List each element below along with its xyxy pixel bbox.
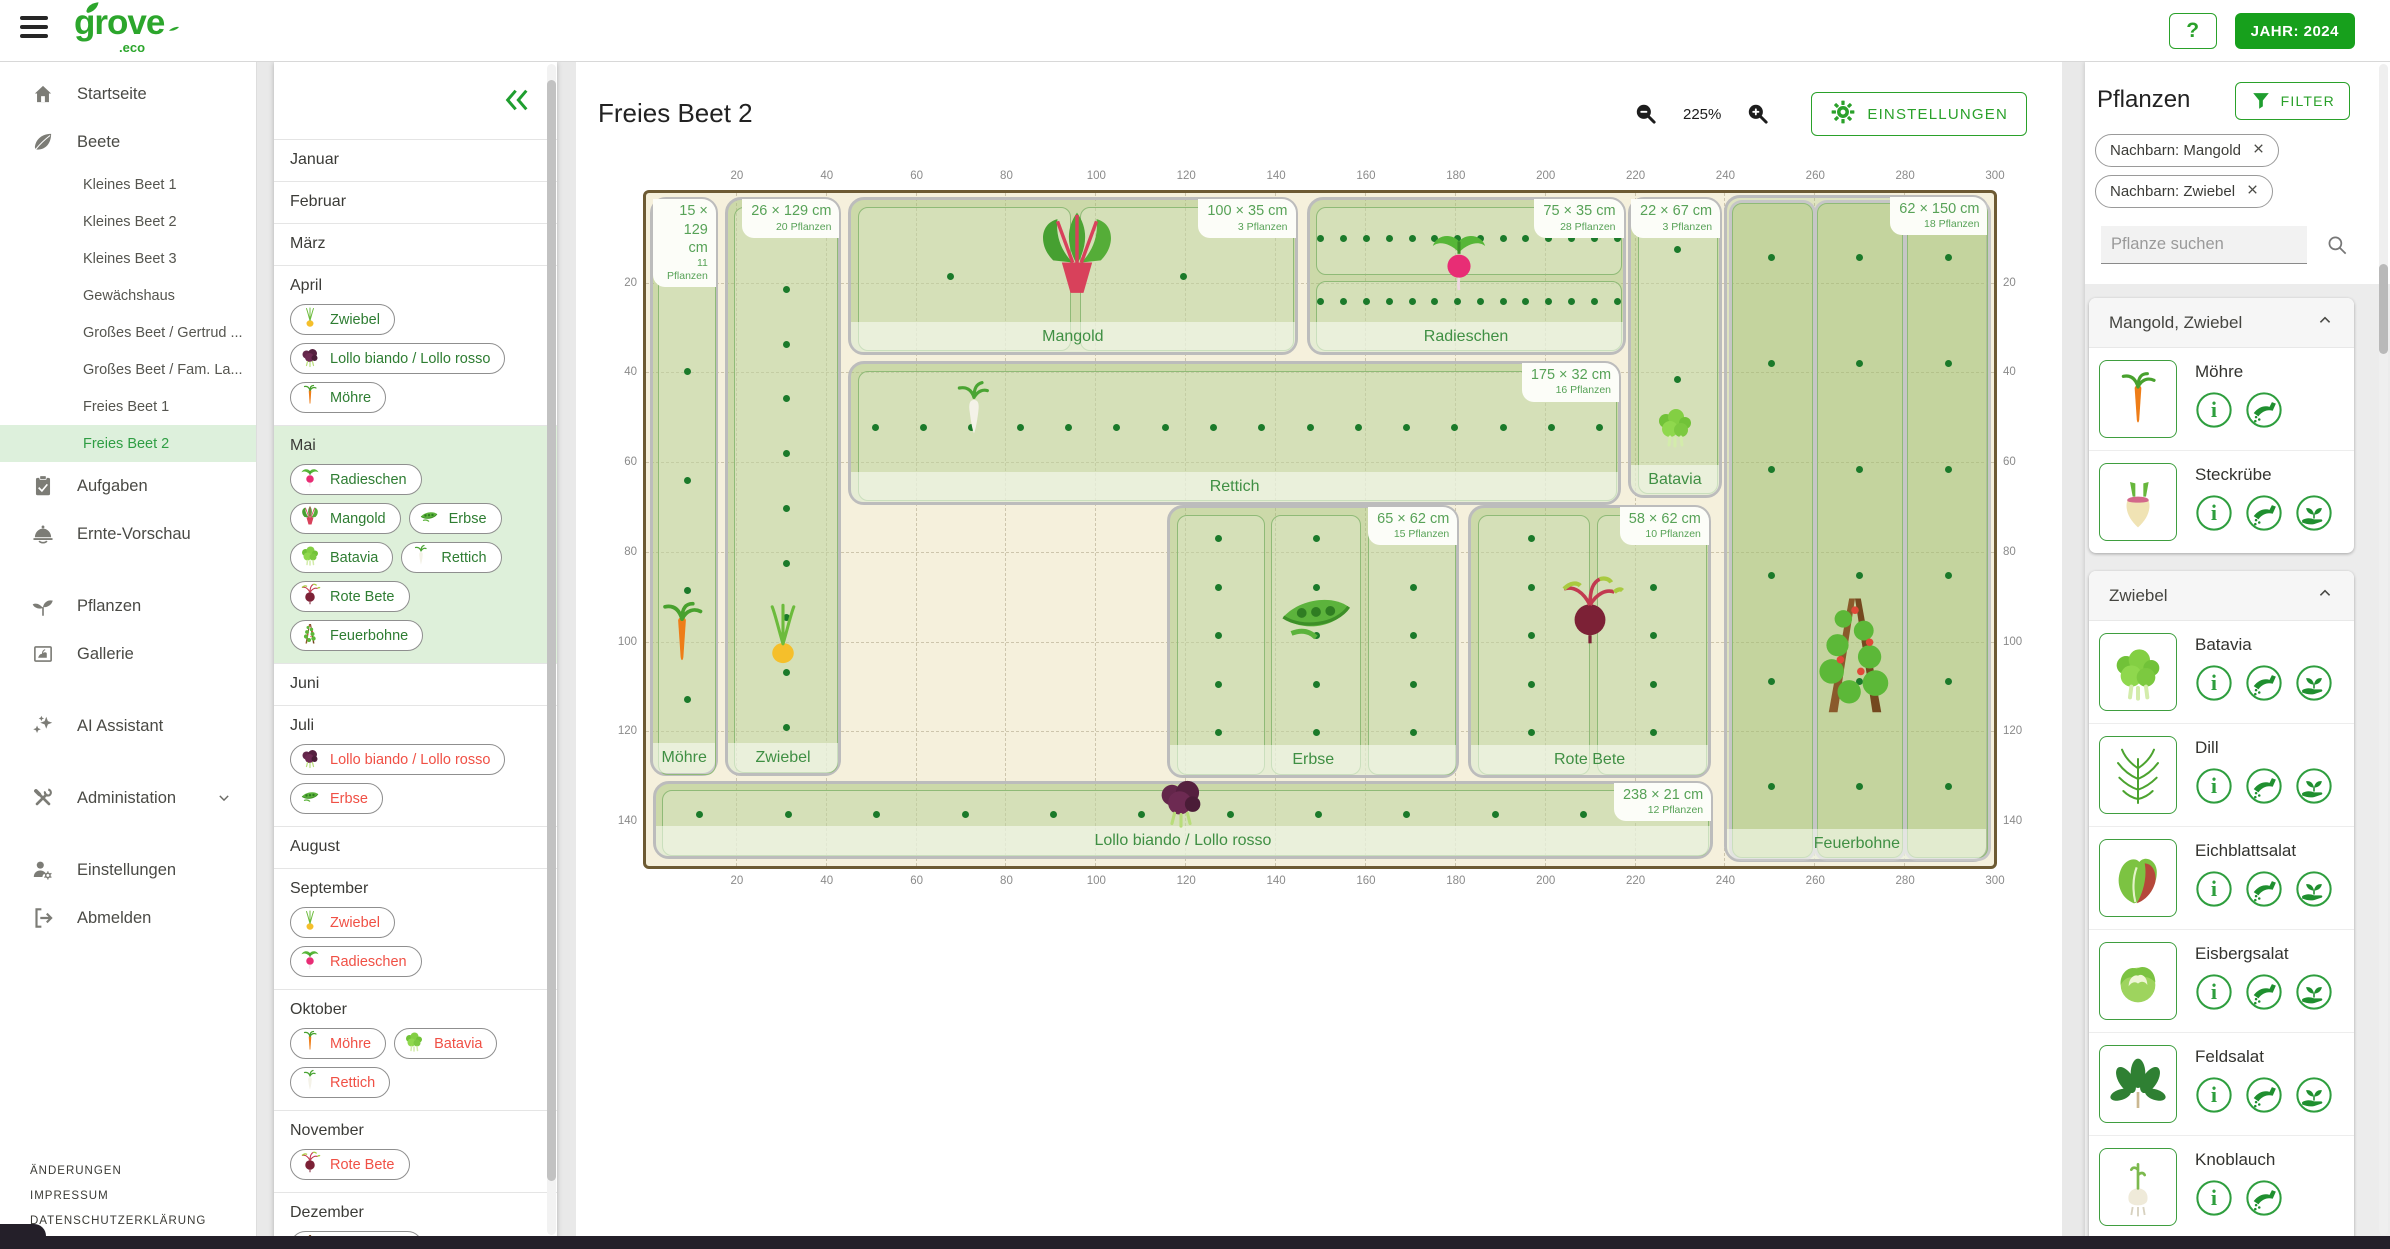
month-april[interactable]: AprilZwiebelLollo biando / Lollo rossoMö… [274, 266, 557, 426]
filter-button[interactable]: FILTER [2235, 82, 2350, 120]
feldsalat-image[interactable] [2099, 1045, 2177, 1123]
sidebar-item-ai-assistant[interactable]: AI Assistant [0, 702, 256, 750]
moehre-image[interactable] [2099, 360, 2177, 438]
rotebete-icon [298, 582, 322, 611]
close-icon[interactable] [2245, 182, 2260, 201]
chip-label: Mangold [330, 511, 386, 527]
svg-text:i: i [2211, 979, 2217, 1004]
zoom-out-icon[interactable] [1633, 101, 1659, 127]
plant-chip-zwiebel[interactable]: Zwiebel [290, 304, 395, 335]
plant-dot [1138, 811, 1145, 818]
sidebar-item-label: Administation [77, 789, 176, 808]
plant-dot [962, 811, 969, 818]
month-label: August [290, 838, 541, 856]
plant-dot [1403, 811, 1410, 818]
plant-group-zwiebel: ZwiebelBataviaiDilliEichblattsalatiEisbe… [2089, 571, 2354, 1249]
sidebar: StartseiteBeeteKleines Beet 1Kleines Bee… [0, 62, 257, 1249]
month-juni[interactable]: Juni [274, 664, 557, 706]
plant-dot [1650, 681, 1657, 688]
sidebar-item-label: Gallerie [77, 645, 134, 664]
area-size-badge: 100 × 35 cm3 Pflanzen [1198, 199, 1295, 237]
sidebar-item-gallerie[interactable]: Gallerie [0, 630, 256, 678]
svg-text:i: i [2211, 773, 2217, 798]
plant-dot [684, 368, 691, 375]
plant-dot [1596, 424, 1603, 431]
clipboard-icon [30, 473, 56, 499]
sidebar-item-label: Großes Beet / Fam. La... [83, 362, 243, 378]
svg-text:i: i [2211, 397, 2217, 422]
plant-chip-rote-bete[interactable]: Rote Bete [290, 581, 410, 612]
plant-dot [783, 286, 790, 293]
ruler-label: 100 [2003, 636, 2029, 648]
knoblauch-image[interactable] [2099, 1148, 2177, 1226]
bed-controls: 225% EINSTELLUNGEN [1633, 92, 2027, 136]
group-header[interactable]: Zwiebel [2089, 571, 2354, 621]
svg-text:i: i [2211, 670, 2217, 695]
area-name-label: Erbse [1170, 745, 1456, 775]
area-size-badge: 65 × 62 cm15 Pflanzen [1368, 507, 1457, 545]
month-chips: ZwiebelLollo biando / Lollo rossoMöhre [290, 304, 541, 413]
plant-dot [1065, 424, 1072, 431]
plant-group-mangold-zwiebel: Mangold, ZwiebelMöhreiSteckrübei [2089, 298, 2354, 553]
ruler-label: 120 [611, 725, 637, 737]
sidebar-item-label: Beete [77, 133, 120, 152]
chevron-up-icon [2314, 582, 2336, 609]
plant-chip-lollo-biando-lollo-rosso[interactable]: Lollo biando / Lollo rosso [290, 744, 505, 775]
planting-row [1907, 203, 1988, 858]
sidebar-item-label: Großes Beet / Gertrud ... [83, 325, 243, 341]
sow-button[interactable] [2245, 1179, 2283, 1217]
sidebar-item-kleines-beet-2[interactable]: Kleines Beet 2 [0, 203, 256, 240]
search-input[interactable] [2101, 226, 2307, 264]
area-name-label: Möhre [653, 743, 714, 773]
sidebar-item-freies-beet-2[interactable]: Freies Beet 2 [0, 425, 256, 462]
month-label: November [290, 1122, 541, 1140]
chip-label: Rettich [330, 1075, 375, 1091]
plant-dot [1500, 298, 1507, 305]
svg-text:i: i [2211, 876, 2217, 901]
ruler-label: 280 [1892, 875, 1918, 887]
area-name-label: Lollo biando / Lollo rosso [656, 826, 1710, 856]
sidebar-item-kleines-beet-3[interactable]: Kleines Beet 3 [0, 240, 256, 277]
sidebar-item-administation[interactable]: Administation [0, 774, 256, 822]
eichblattsalat-image[interactable] [2099, 839, 2177, 917]
plant-button[interactable] [2295, 1076, 2333, 1114]
plant-dot [1410, 584, 1417, 591]
month-november[interactable]: NovemberRote Bete [274, 1111, 557, 1193]
bed-area-batavia[interactable]: 22 × 67 cm3 PflanzenBatavia [1628, 197, 1722, 498]
plant-dot [684, 587, 691, 594]
area-size-badge: 22 × 67 cm3 Pflanzen [1631, 199, 1720, 237]
plant-dot [783, 724, 790, 731]
plant-dot [1355, 424, 1362, 431]
plant-dot [783, 450, 790, 457]
group-title: Zwiebel [2109, 586, 2168, 606]
gallery-icon [30, 641, 56, 667]
plant-actions: i [2195, 664, 2333, 702]
ruler-label: 240 [1712, 170, 1738, 182]
sidebar-footer: ÄNDERUNGEN IMPRESSUM DATENSCHUTZERKLÄRUN… [30, 1152, 206, 1227]
plant-dot [1768, 678, 1775, 685]
ruler-label: 40 [2003, 366, 2029, 378]
plant-dot [1945, 572, 1952, 579]
plant-dot [1386, 235, 1393, 242]
plant-chip-feuerbohne[interactable]: Feuerbohne [290, 620, 423, 651]
plant-dot [1210, 424, 1217, 431]
plant-dot [1945, 466, 1952, 473]
ruler-label: 220 [1623, 875, 1649, 887]
batavia-icon [402, 1029, 426, 1058]
sow-button[interactable] [2245, 664, 2283, 702]
sow-button[interactable] [2245, 973, 2283, 1011]
plant-name: Knoblauch [2195, 1150, 2283, 1170]
month-m-rz[interactable]: März [274, 224, 557, 266]
plant-actions: i [2195, 767, 2333, 805]
info-button[interactable]: i [2195, 494, 2233, 532]
chip-label: Lollo biando / Lollo rosso [330, 752, 490, 768]
bed-area-zwiebel[interactable]: 26 × 129 cm20 PflanzenZwiebel [725, 197, 842, 776]
ruler-label: 180 [1443, 170, 1469, 182]
info-button[interactable]: i [2195, 767, 2233, 805]
area-size-badge: 58 × 62 cm10 Pflanzen [1620, 507, 1709, 545]
sidebar-item-pflanzen[interactable]: Pflanzen [0, 582, 256, 630]
eisbergsalat-image[interactable] [2099, 942, 2177, 1020]
ruler-label: 60 [2003, 456, 2029, 468]
plant-dot [783, 505, 790, 512]
sparkles-icon [30, 713, 56, 739]
ruler-label: 280 [1892, 170, 1918, 182]
sow-button[interactable] [2245, 494, 2283, 532]
ruler-label: 260 [1802, 170, 1828, 182]
month-chips: RadieschenMangoldErbseBataviaRettichRote… [290, 464, 541, 651]
plant-dot [873, 811, 880, 818]
info-button[interactable]: i [2195, 664, 2233, 702]
bed-area-mangold[interactable]: 100 × 35 cm3 PflanzenMangold [848, 197, 1297, 354]
dill-image[interactable] [2099, 736, 2177, 814]
calendar-scrollbar[interactable] [547, 64, 556, 1235]
plant-chip-rettich[interactable]: Rettich [401, 542, 501, 573]
bed-area-erbse[interactable]: 65 × 62 cm15 PflanzenErbse [1167, 505, 1459, 779]
month-chips: ZwiebelRadieschen [290, 907, 541, 977]
chip-label: Erbse [330, 791, 368, 807]
ruler-label: 240 [1712, 875, 1738, 887]
ruler-label: 40 [814, 875, 840, 887]
plant-chip-rettich[interactable]: Rettich [290, 1067, 390, 1098]
leaf-icon [30, 129, 56, 155]
ruler-label: 120 [1173, 875, 1199, 887]
batavia-image[interactable] [2099, 633, 2177, 711]
plant-dot [1307, 424, 1314, 431]
bed-area-rote-bete[interactable]: 58 × 62 cm10 PflanzenRote Bete [1468, 505, 1711, 779]
radieschen-icon [298, 947, 322, 976]
ruler-label: 140 [611, 815, 637, 827]
sidebar-item-ernte-vorschau[interactable]: Ernte-Vorschau [0, 510, 256, 558]
sidebar-item-label: Pflanzen [77, 597, 141, 616]
plant-chip-zwiebel[interactable]: Zwiebel [290, 907, 395, 938]
area-size-badge: 15 × 129 cm11 Pflanzen [653, 199, 715, 287]
ruler-label: 100 [1083, 170, 1109, 182]
month-label: April [290, 277, 541, 295]
page-title: Freies Beet 2 [598, 98, 753, 129]
sidebar-item-kleines-beet-1[interactable]: Kleines Beet 1 [0, 166, 256, 203]
plant-dot [783, 395, 790, 402]
plant-dot [1650, 584, 1657, 591]
plant-chip-batavia[interactable]: Batavia [290, 542, 393, 573]
plant-dot [1162, 424, 1169, 431]
plant-dot [1568, 298, 1575, 305]
plant-dot [920, 424, 927, 431]
plant-actions: i [2195, 1179, 2283, 1217]
steckruebe-image[interactable] [2099, 463, 2177, 541]
settings-button[interactable]: EINSTELLUNGEN [1811, 92, 2027, 136]
ruler-label: 160 [1353, 170, 1379, 182]
sidebar-item-freies-beet-1[interactable]: Freies Beet 1 [0, 388, 256, 425]
sidebar-item-abmelden[interactable]: Abmelden [0, 894, 256, 942]
ruler-label: 80 [2003, 546, 2029, 558]
info-button[interactable]: i [2195, 870, 2233, 908]
month-label: Mai [290, 437, 541, 455]
area-name-label: Feuerbohne [1727, 829, 1986, 859]
collapse-panel-icon[interactable] [501, 84, 533, 121]
month-september[interactable]: SeptemberZwiebelRadieschen [274, 869, 557, 990]
sidebar-item-label: Freies Beet 2 [83, 436, 169, 452]
bed-area-m-hre[interactable]: 15 × 129 cm11 PflanzenMöhre [650, 197, 717, 776]
plant-dot [1313, 632, 1320, 639]
calendar-panel-header [274, 62, 557, 140]
plant-dot [1500, 424, 1507, 431]
plant-dot [1410, 681, 1417, 688]
plant-name: Möhre [2195, 362, 2283, 382]
sidebar-item-startseite[interactable]: Startseite [0, 70, 256, 118]
month-februar[interactable]: Februar [274, 182, 557, 224]
sidebar-item-label: Abmelden [77, 909, 151, 928]
moehre-icon [298, 1029, 322, 1058]
plant-dot [684, 696, 691, 703]
sidebar-item-label: Ernte-Vorschau [77, 525, 191, 544]
area-name-label: Radieschen [1310, 322, 1623, 352]
ruler-label: 80 [611, 546, 637, 558]
plant-button[interactable] [2295, 973, 2333, 1011]
plant-dot [872, 424, 879, 431]
home-icon [30, 81, 56, 107]
app-logo[interactable]: grove .eco [74, 4, 164, 42]
garden-bed-wrap: 15 × 129 cm11 PflanzenMöhre26 × 129 cm20… [643, 190, 1997, 869]
group-header[interactable]: Mangold, Zwiebel [2089, 298, 2354, 348]
plant-dot [1227, 811, 1234, 818]
gear-icon [1830, 99, 1856, 129]
feuerbohne-icon [298, 621, 322, 650]
plant-name: Batavia [2195, 635, 2333, 655]
info-button[interactable]: i [2195, 973, 2233, 1011]
month-mai[interactable]: MaiRadieschenMangoldErbseBataviaRettichR… [274, 426, 557, 664]
year-button[interactable]: JAHR: 2024 [2235, 13, 2355, 49]
bed-area-feuerbohne[interactable]: 62 × 150 cm18 PflanzenFeuerbohne [1724, 195, 1989, 861]
plant-dot [1315, 811, 1322, 818]
ruler-label: 80 [993, 875, 1019, 887]
plant-dot [783, 614, 790, 621]
plant-actions: i [2195, 391, 2283, 429]
help-button[interactable]: ? [2169, 13, 2217, 49]
plant-button[interactable] [2295, 664, 2333, 702]
ruler-label: 20 [611, 277, 637, 289]
planting-row [1817, 203, 1902, 858]
plant-dot [1113, 424, 1120, 431]
chip-label: Rote Bete [330, 589, 395, 605]
menu-icon[interactable] [20, 16, 50, 44]
plant-button[interactable] [2295, 767, 2333, 805]
sidebar-item-beete[interactable]: Beete [0, 118, 256, 166]
plant-list-item-eisbergsalat: Eisbergsalati [2089, 930, 2354, 1033]
sow-button[interactable] [2245, 767, 2283, 805]
footer-link-impressum[interactable]: IMPRESSUM [30, 1190, 206, 1202]
sidebar-item-einstellungen[interactable]: Einstellungen [0, 846, 256, 894]
footer-link-aenderungen[interactable]: ÄNDERUNGEN [30, 1165, 206, 1177]
plant-name: Eisbergsalat [2195, 944, 2333, 964]
garden-bed[interactable]: 15 × 129 cm11 PflanzenMöhre26 × 129 cm20… [643, 190, 1997, 869]
ruler-label: 100 [1083, 875, 1109, 887]
bed-area-lollo-biando-lollo-rosso[interactable]: 238 × 21 cm12 PflanzenLollo biando / Lol… [653, 781, 1713, 860]
plant-dot [783, 669, 790, 676]
info-button[interactable]: i [2195, 1179, 2233, 1217]
plant-dot [783, 560, 790, 567]
plant-chip-m-hre[interactable]: Möhre [290, 1028, 386, 1059]
plants-scrollbar[interactable] [2379, 64, 2388, 1235]
filter-chip-mangold[interactable]: Nachbarn: Mangold [2095, 134, 2279, 167]
plant-dot [947, 273, 954, 280]
zoom-in-icon[interactable] [1745, 101, 1771, 127]
plant-dot [1768, 466, 1775, 473]
plant-dot [1492, 811, 1499, 818]
sow-button[interactable] [2245, 1076, 2283, 1114]
plant-chip-batavia[interactable]: Batavia [394, 1028, 497, 1059]
info-button[interactable]: i [2195, 1076, 2233, 1114]
sow-button[interactable] [2245, 870, 2283, 908]
info-button[interactable]: i [2195, 391, 2233, 429]
month-label: Januar [290, 151, 541, 169]
erbse-icon [417, 504, 441, 533]
svg-text:i: i [2211, 500, 2217, 525]
filter-chip-zwiebel[interactable]: Nachbarn: Zwiebel [2095, 175, 2273, 208]
plant-dot [1477, 235, 1484, 242]
zwiebel-icon [298, 908, 322, 937]
planting-row [658, 205, 716, 775]
area-size-badge: 26 × 129 cm20 Pflanzen [742, 199, 839, 237]
plants-panel-title: Pflanzen [2097, 86, 2190, 114]
bed-plan-main: Freies Beet 2 225% EINSTELLUNGEN 15 × 12… [576, 62, 2062, 1249]
sow-button[interactable] [2245, 391, 2283, 429]
month-juli[interactable]: JuliLollo biando / Lollo rossoErbse [274, 706, 557, 827]
plant-chip-rote-bete[interactable]: Rote Bete [290, 1149, 410, 1180]
plant-chip-m-hre[interactable]: Möhre [290, 382, 386, 413]
plant-dot [1017, 424, 1024, 431]
plant-button[interactable] [2295, 494, 2333, 532]
plant-list-item-dill: Dilli [2089, 724, 2354, 827]
top-bar: grove .eco ? JAHR: 2024 [0, 0, 2390, 62]
plant-dot [1409, 298, 1416, 305]
sidebar-item-label: Startseite [77, 85, 147, 104]
plant-dot [1580, 811, 1587, 818]
plant-dot [1548, 424, 1555, 431]
seedling-icon [30, 593, 56, 619]
bed-area-rettich[interactable]: 175 × 32 cm16 PflanzenRettich [848, 361, 1621, 505]
ruler-label: 60 [904, 875, 930, 887]
plant-list-item-knoblauch: Knoblauchi [2089, 1136, 2354, 1239]
plant-chip-erbse[interactable]: Erbse [409, 503, 502, 534]
plant-chip-radieschen[interactable]: Radieschen [290, 946, 422, 977]
plant-button[interactable] [2295, 870, 2333, 908]
plant-chip-mangold[interactable]: Mangold [290, 503, 401, 534]
ruler-label: 300 [1982, 170, 2008, 182]
sidebar-item-label: AI Assistant [77, 717, 163, 736]
chip-label: Möhre [330, 390, 371, 406]
chip-label: Zwiebel [330, 915, 380, 931]
plant-dot [1313, 729, 1320, 736]
ruler-label: 40 [814, 170, 840, 182]
tools-icon [30, 785, 56, 811]
bottom-bar [0, 1236, 2390, 1249]
plant-dot [696, 811, 703, 818]
plant-list-item-steckr-be: Steckrübei [2089, 451, 2354, 553]
ruler-label: 200 [1533, 170, 1559, 182]
sidebar-item-label: Gewächshaus [83, 288, 175, 304]
plant-dot [1363, 298, 1370, 305]
month-label: Februar [290, 193, 541, 211]
lollo-icon [298, 745, 322, 774]
ruler-label: 60 [904, 170, 930, 182]
plant-chip-lollo-biando-lollo-rosso[interactable]: Lollo biando / Lollo rosso [290, 343, 505, 374]
month-januar[interactable]: Januar [274, 140, 557, 182]
plant-chip-erbse[interactable]: Erbse [290, 783, 383, 814]
month-label: Juli [290, 717, 541, 735]
lollo-icon [298, 344, 322, 373]
sidebar-item-gro-es-beet-fam-la[interactable]: Großes Beet / Fam. La... [0, 351, 256, 388]
plant-chip-radieschen[interactable]: Radieschen [290, 464, 422, 495]
chip-label: Rote Bete [330, 1157, 395, 1173]
sidebar-item-gew-chshaus[interactable]: Gewächshaus [0, 277, 256, 314]
sidebar-item-aufgaben[interactable]: Aufgaben [0, 462, 256, 510]
plant-dot [1945, 360, 1952, 367]
plant-dot [1313, 535, 1320, 542]
sidebar-item-gro-es-beet-gertrud[interactable]: Großes Beet / Gertrud ... [0, 314, 256, 351]
month-label: Oktober [290, 1001, 541, 1019]
footer-link-datenschutz[interactable]: DATENSCHUTZERKLÄRUNG [30, 1215, 206, 1227]
ruler-label: 180 [1443, 875, 1469, 887]
area-name-label: Rote Bete [1471, 745, 1708, 775]
ruler-label: 300 [1982, 875, 2008, 887]
plant-dot [1614, 298, 1621, 305]
plant-name: Dill [2195, 738, 2333, 758]
month-august[interactable]: August [274, 827, 557, 869]
sidebar-item-label: Kleines Beet 3 [83, 251, 177, 267]
month-chips: Lollo biando / Lollo rossoErbse [290, 744, 541, 814]
plant-name: Feldsalat [2195, 1047, 2333, 1067]
chevron-up-icon [2314, 309, 2336, 336]
logo-leaf-icon [80, 0, 102, 23]
plant-dot [1313, 584, 1320, 591]
search-icon [2324, 232, 2350, 263]
ruler-label: 120 [1173, 170, 1199, 182]
plant-name: Steckrübe [2195, 465, 2333, 485]
sidebar-item-label: Aufgaben [77, 477, 148, 496]
month-oktober[interactable]: OktoberMöhreBataviaRettich [274, 990, 557, 1111]
logout-icon [30, 905, 56, 931]
plant-dot [785, 811, 792, 818]
chip-label: Rettich [441, 550, 486, 566]
bed-area-radieschen[interactable]: 75 × 35 cm28 PflanzenRadieschen [1307, 197, 1626, 354]
plant-actions: i [2195, 1076, 2333, 1114]
close-icon[interactable] [2251, 141, 2266, 160]
ruler-label: 40 [611, 366, 637, 378]
